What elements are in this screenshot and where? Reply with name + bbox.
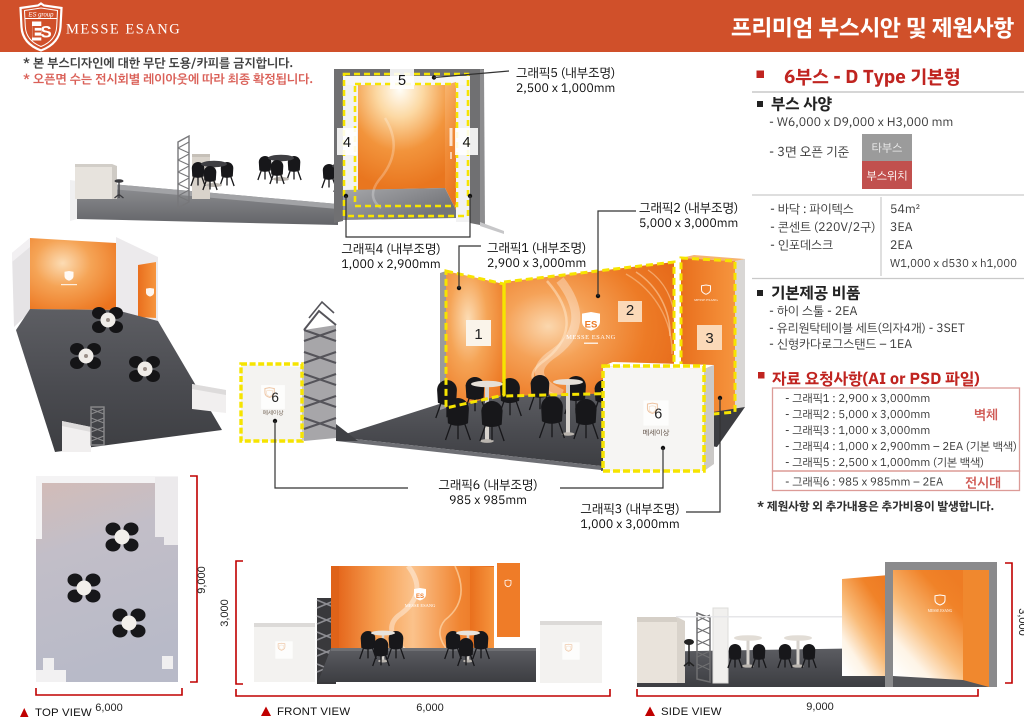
- svg-text:FRONT VIEW: FRONT VIEW: [277, 706, 350, 718]
- svg-text:6: 6: [271, 390, 279, 405]
- svg-text:SIDE VIEW: SIDE VIEW: [661, 706, 722, 718]
- svg-text:6: 6: [654, 406, 662, 422]
- svg-text:TOP VIEW: TOP VIEW: [35, 707, 92, 719]
- svg-text:1: 1: [474, 326, 482, 343]
- svg-text:2: 2: [626, 302, 634, 319]
- svg-text:ES: ES: [585, 320, 598, 331]
- svg-text:3,000: 3,000: [1016, 608, 1024, 636]
- svg-text:ES group: ES group: [28, 13, 54, 19]
- svg-text:MESSE ESANG: MESSE ESANG: [694, 298, 718, 302]
- svg-text:9,000: 9,000: [196, 566, 208, 594]
- svg-text:3,000: 3,000: [219, 599, 231, 627]
- svg-text:3: 3: [705, 330, 713, 347]
- svg-text:MESSE ESANG: MESSE ESANG: [928, 609, 953, 613]
- svg-text:MESSE ESANG: MESSE ESANG: [405, 603, 436, 608]
- svg-text:MESSE ESANG: MESSE ESANG: [566, 334, 616, 341]
- svg-text:MESSE ESANG: MESSE ESANG: [66, 22, 181, 38]
- svg-text:4: 4: [462, 135, 470, 151]
- svg-text:4: 4: [343, 135, 351, 151]
- svg-text:S: S: [40, 23, 51, 42]
- svg-text:6,000: 6,000: [416, 702, 444, 714]
- svg-text:9,000: 9,000: [806, 701, 834, 713]
- svg-text:5: 5: [398, 73, 406, 89]
- svg-text:6,000: 6,000: [95, 702, 123, 714]
- svg-text:ES: ES: [416, 594, 424, 600]
